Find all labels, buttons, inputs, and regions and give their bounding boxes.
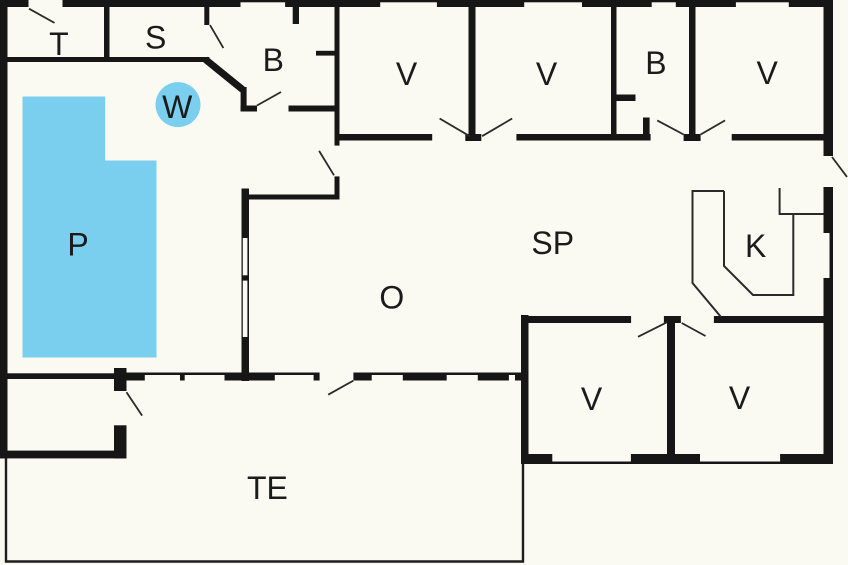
svg-text:SP: SP — [531, 225, 574, 261]
svg-text:B: B — [263, 42, 284, 78]
svg-text:K: K — [745, 228, 766, 264]
svg-text:S: S — [145, 20, 166, 56]
svg-text:T: T — [49, 26, 69, 62]
svg-text:V: V — [757, 55, 779, 91]
svg-text:V: V — [581, 381, 603, 417]
svg-text:P: P — [67, 226, 88, 262]
svg-text:V: V — [536, 56, 558, 92]
svg-text:O: O — [379, 280, 404, 316]
svg-text:V: V — [396, 56, 418, 92]
svg-text:TE: TE — [247, 470, 288, 506]
svg-text:B: B — [645, 45, 666, 81]
svg-text:W: W — [162, 89, 193, 125]
svg-text:V: V — [729, 380, 751, 416]
